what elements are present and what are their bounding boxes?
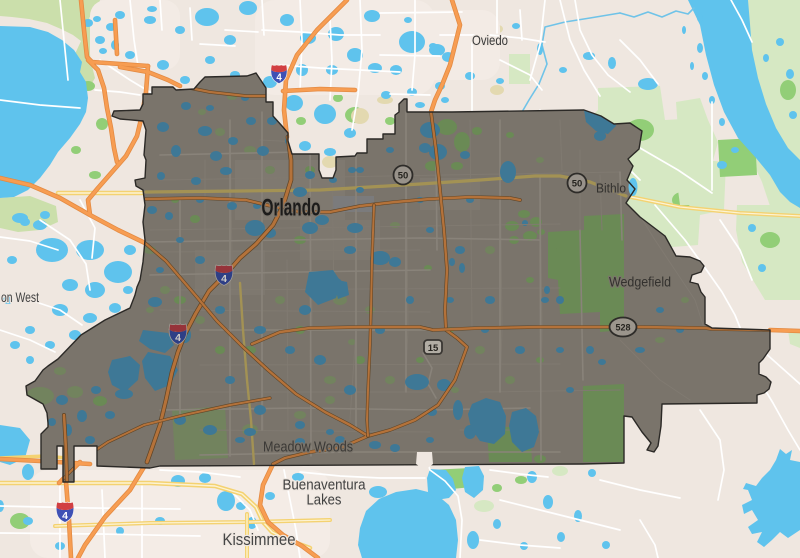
svg-text:Oviedo: Oviedo	[472, 32, 508, 48]
svg-text:4: 4	[62, 510, 68, 522]
svg-text:Lakes: Lakes	[307, 493, 342, 509]
svg-text:Orlando: Orlando	[262, 195, 321, 222]
svg-text:4: 4	[175, 332, 181, 344]
svg-text:Kissimmee: Kissimmee	[223, 530, 296, 549]
svg-text:50: 50	[572, 179, 583, 190]
svg-text:Bithlo: Bithlo	[596, 181, 626, 196]
svg-text:50: 50	[398, 171, 409, 182]
svg-text:Buenaventura: Buenaventura	[283, 478, 367, 494]
svg-text:4: 4	[276, 73, 282, 84]
svg-text:4: 4	[221, 273, 227, 285]
svg-text:528: 528	[615, 323, 630, 333]
svg-text:Meadow Woods: Meadow Woods	[263, 440, 353, 456]
svg-text:15: 15	[428, 343, 439, 354]
svg-text:on West: on West	[1, 289, 39, 305]
svg-text:Wedgefield: Wedgefield	[609, 274, 671, 290]
